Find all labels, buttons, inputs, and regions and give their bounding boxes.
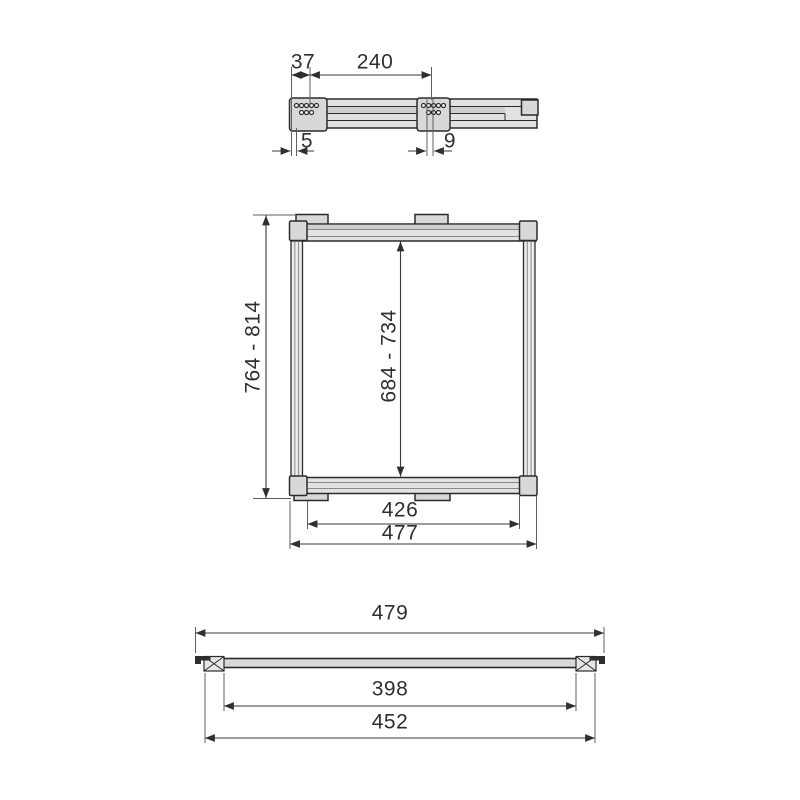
mounting-bracket-left <box>290 98 328 131</box>
dim-label-overall-height-range: 764 - 814 <box>243 300 264 393</box>
dim-label-end-inset: 5 <box>301 131 313 152</box>
corner-connector-bottom-right <box>520 476 538 496</box>
dim-label-crossbar-inner-width: 398 <box>372 679 409 700</box>
dim-label-frame-overall-width: 477 <box>382 523 419 544</box>
rail-end-block <box>522 100 539 115</box>
dim-label-between-brackets: 240 <box>357 52 394 73</box>
frame-bottom-rail <box>291 478 536 494</box>
crossbar <box>223 659 577 668</box>
dim-label-bracket-hole-offset: 9 <box>444 131 456 152</box>
corner-connector-top-right <box>520 221 538 241</box>
corner-connector-bottom-left <box>290 476 308 496</box>
frame-right-rail <box>524 241 536 477</box>
dim-label-crossbar-mounting-width: 452 <box>372 712 409 733</box>
dim-label-crossbar-overall-width: 479 <box>372 603 409 624</box>
corner-connector-top-left <box>290 221 308 241</box>
technical-drawing-page: 37 240 5 9 764 - 814 684 - 734 426 477 4… <box>0 0 800 800</box>
dim-label-frame-inner-width: 426 <box>382 500 419 521</box>
dim-label-inner-height-range: 684 - 734 <box>379 309 400 402</box>
dim-label-end-to-first-bracket: 37 <box>291 52 315 73</box>
frame-left-rail <box>291 241 303 477</box>
